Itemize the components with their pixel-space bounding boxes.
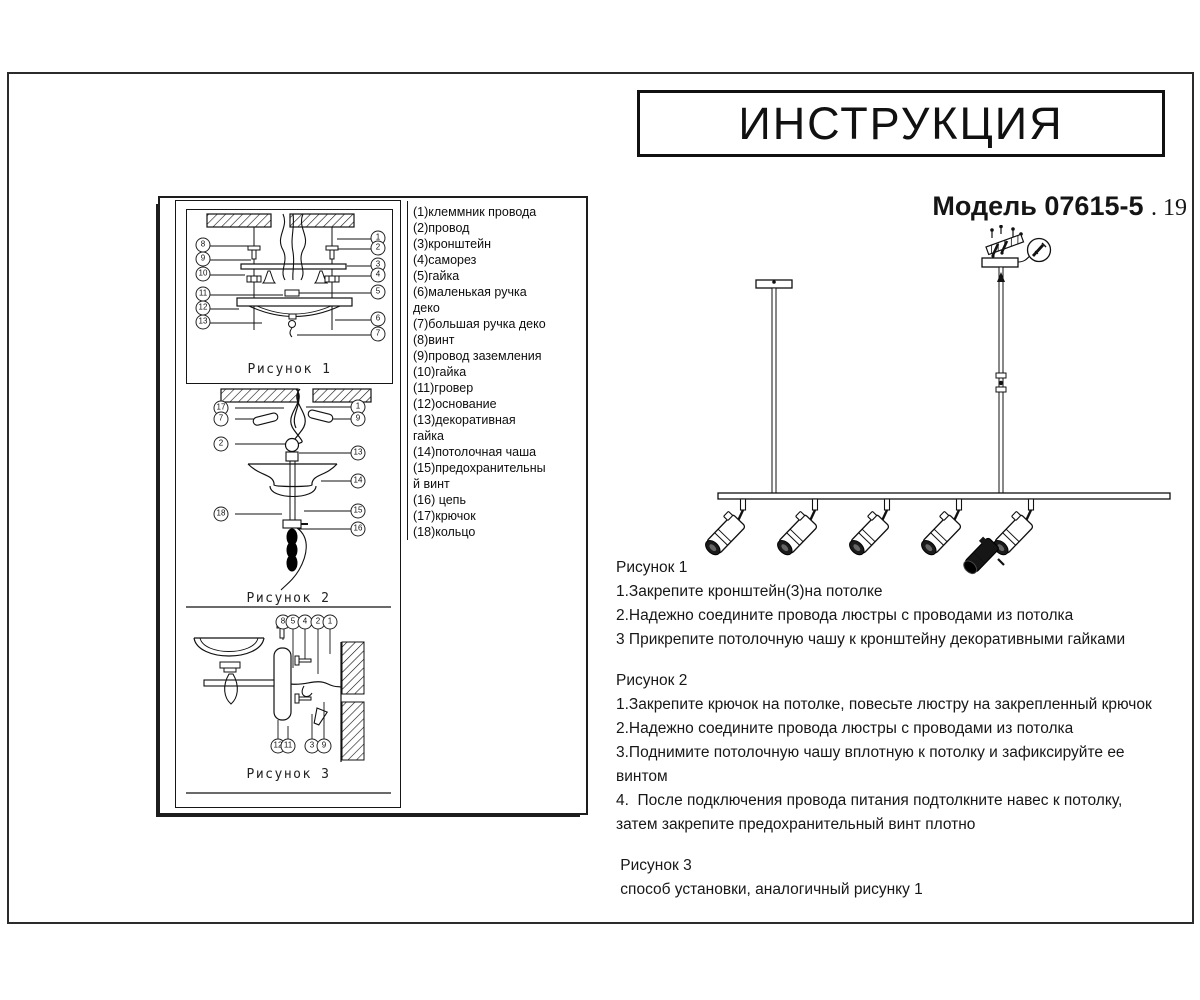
parts-list-line: деко (413, 300, 583, 316)
page-title: ИНСТРУКЦИЯ (738, 98, 1063, 150)
callout-circle: 2 (214, 437, 229, 452)
callout-circle: 9 (196, 252, 211, 267)
parts-list-line: (6)маленькая ручка (413, 284, 583, 300)
callout-circle: 8 (196, 238, 211, 253)
parts-list-line: (11)гровер (413, 380, 583, 396)
callout-circle: 14 (351, 474, 366, 489)
figure-3-caption: Рисунок 3 (186, 767, 391, 782)
parts-list-line: (3)кронштейн (413, 236, 583, 252)
instruction-line: 3 Прикрепите потолочную чашу к кронштейн… (616, 628, 1200, 652)
callout-circle: 13 (351, 446, 366, 461)
instruction-line: 3.Поднимите потолочную чашу вплотную к п… (616, 741, 1200, 765)
parts-list-line: (7)большая ручка деко (413, 316, 583, 332)
instruction-line: затем закрепите предохранительный винт п… (616, 813, 1200, 837)
mounting-bracket-detail (982, 225, 1051, 267)
callout-circle: 15 (351, 504, 366, 519)
model-line: Модель 07615-5 . 19 (700, 191, 1187, 222)
instruction-section: Рисунок 3 способ установки, аналогичный … (616, 854, 1200, 902)
model-label: Модель 07615-5 (932, 191, 1143, 221)
callout-circle: 2 (371, 241, 386, 256)
parts-list-line: (9)провод заземления (413, 348, 583, 364)
parts-list-line: (14)потолочная чаша (413, 444, 583, 460)
main-assembly-drawing (630, 225, 1200, 575)
figure-1-box: Рисунок 1 (186, 209, 393, 384)
parts-list-line: (1)клеммник провода (413, 204, 583, 220)
instructions: Рисунок 11.Закрепите кронштейн(3)на пото… (616, 556, 1200, 919)
instruction-heading: Рисунок 3 (616, 854, 1200, 878)
parts-list-line: (15)предохранительны (413, 460, 583, 476)
parts-list-line: (13)декоративная (413, 412, 583, 428)
figure-1-drawing (187, 210, 392, 383)
instruction-section: Рисунок 21.Закрепите крючок на потолке, … (616, 669, 1200, 837)
figure-2-caption: Рисунок 2 (186, 591, 391, 606)
parts-list: (1)клеммник провода(2)провод(3)кронштейн… (407, 201, 583, 540)
callout-circle: 7 (371, 327, 386, 342)
callout-circle: 1 (323, 615, 338, 630)
callout-circle: 13 (196, 315, 211, 330)
figures-column: Рисунок 1 (175, 200, 401, 808)
instruction-line: 1.Закрепите крючок на потолке, повесьте … (616, 693, 1200, 717)
instruction-line: винтом (616, 765, 1200, 789)
parts-list-line: (12)основание (413, 396, 583, 412)
callout-circle: 11 (196, 287, 211, 302)
instruction-line: 1.Закрепите кронштейн(3)на потолке (616, 580, 1200, 604)
callout-circle: 6 (371, 312, 386, 327)
parts-list-line: й винт (413, 476, 583, 492)
callout-circle: 4 (371, 268, 386, 283)
parts-list-line: (17)крючок (413, 508, 583, 524)
callout-circle: 9 (351, 412, 366, 427)
callout-circle: 12 (196, 301, 211, 316)
callout-circle: 10 (196, 267, 211, 282)
callout-circle: 11 (281, 739, 296, 754)
callout-circle: 5 (371, 285, 386, 300)
parts-list-line: (5)гайка (413, 268, 583, 284)
instruction-section: Рисунок 11.Закрепите кронштейн(3)на пото… (616, 556, 1200, 652)
instruction-line: 2.Надежно соедините провода люстры с про… (616, 604, 1200, 628)
instruction-heading: Рисунок 1 (616, 556, 1200, 580)
model-suffix: . 19 (1151, 195, 1187, 221)
instruction-line: 2.Надежно соедините провода люстры с про… (616, 717, 1200, 741)
parts-list-line: (4)саморез (413, 252, 583, 268)
parts-list-line: гайка (413, 428, 583, 444)
parts-list-line: (16) цепь (413, 492, 583, 508)
parts-list-line: (8)винт (413, 332, 583, 348)
parts-list-line: (2)провод (413, 220, 583, 236)
title-box: ИНСТРУКЦИЯ (637, 90, 1165, 157)
callout-circle: 7 (214, 412, 229, 427)
instruction-heading: Рисунок 2 (616, 669, 1200, 693)
instruction-line: способ установки, аналогичный рисунку 1 (616, 878, 1200, 902)
parts-list-line: (10)гайка (413, 364, 583, 380)
callout-circle: 9 (317, 739, 332, 754)
figures-panel: Рисунок 1 (158, 196, 588, 815)
instruction-line: 4. После подключения провода питания под… (616, 789, 1200, 813)
callout-circle: 18 (214, 507, 229, 522)
figure-1-caption: Рисунок 1 (187, 362, 392, 377)
parts-list-line: (18)кольцо (413, 524, 583, 540)
callout-circle: 16 (351, 522, 366, 537)
